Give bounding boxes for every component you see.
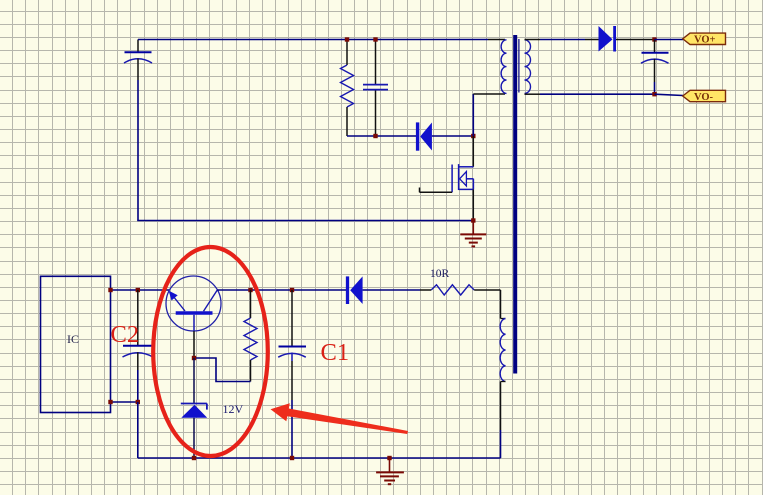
svg-text:C2: C2 bbox=[111, 321, 140, 348]
svg-text:12V: 12V bbox=[223, 402, 244, 416]
svg-text:VO-: VO- bbox=[694, 92, 714, 103]
svg-text:IC: IC bbox=[67, 332, 79, 346]
svg-text:10R: 10R bbox=[430, 268, 450, 280]
svg-text:VO+: VO+ bbox=[694, 35, 716, 46]
svg-text:C1: C1 bbox=[321, 339, 350, 366]
